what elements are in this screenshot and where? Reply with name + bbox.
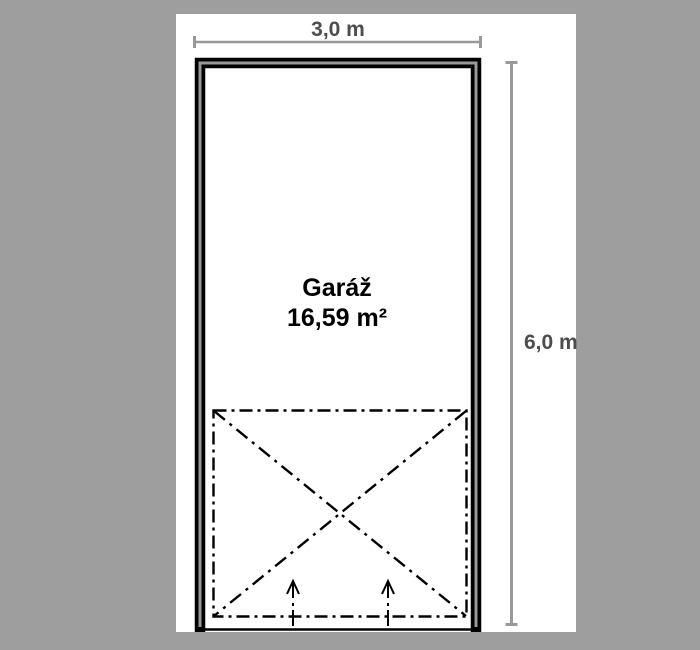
floor-plan-canvas: 3,0 m 6,0 m bbox=[0, 0, 700, 650]
height-dimension-label: 6,0 m bbox=[524, 331, 578, 354]
floor-plan: 3,0 m 6,0 m bbox=[0, 0, 700, 650]
width-dimension-label: 3,0 m bbox=[311, 18, 365, 41]
room-name-label: Garáž bbox=[302, 274, 371, 302]
room-area-label: 16,59 m² bbox=[287, 304, 387, 332]
